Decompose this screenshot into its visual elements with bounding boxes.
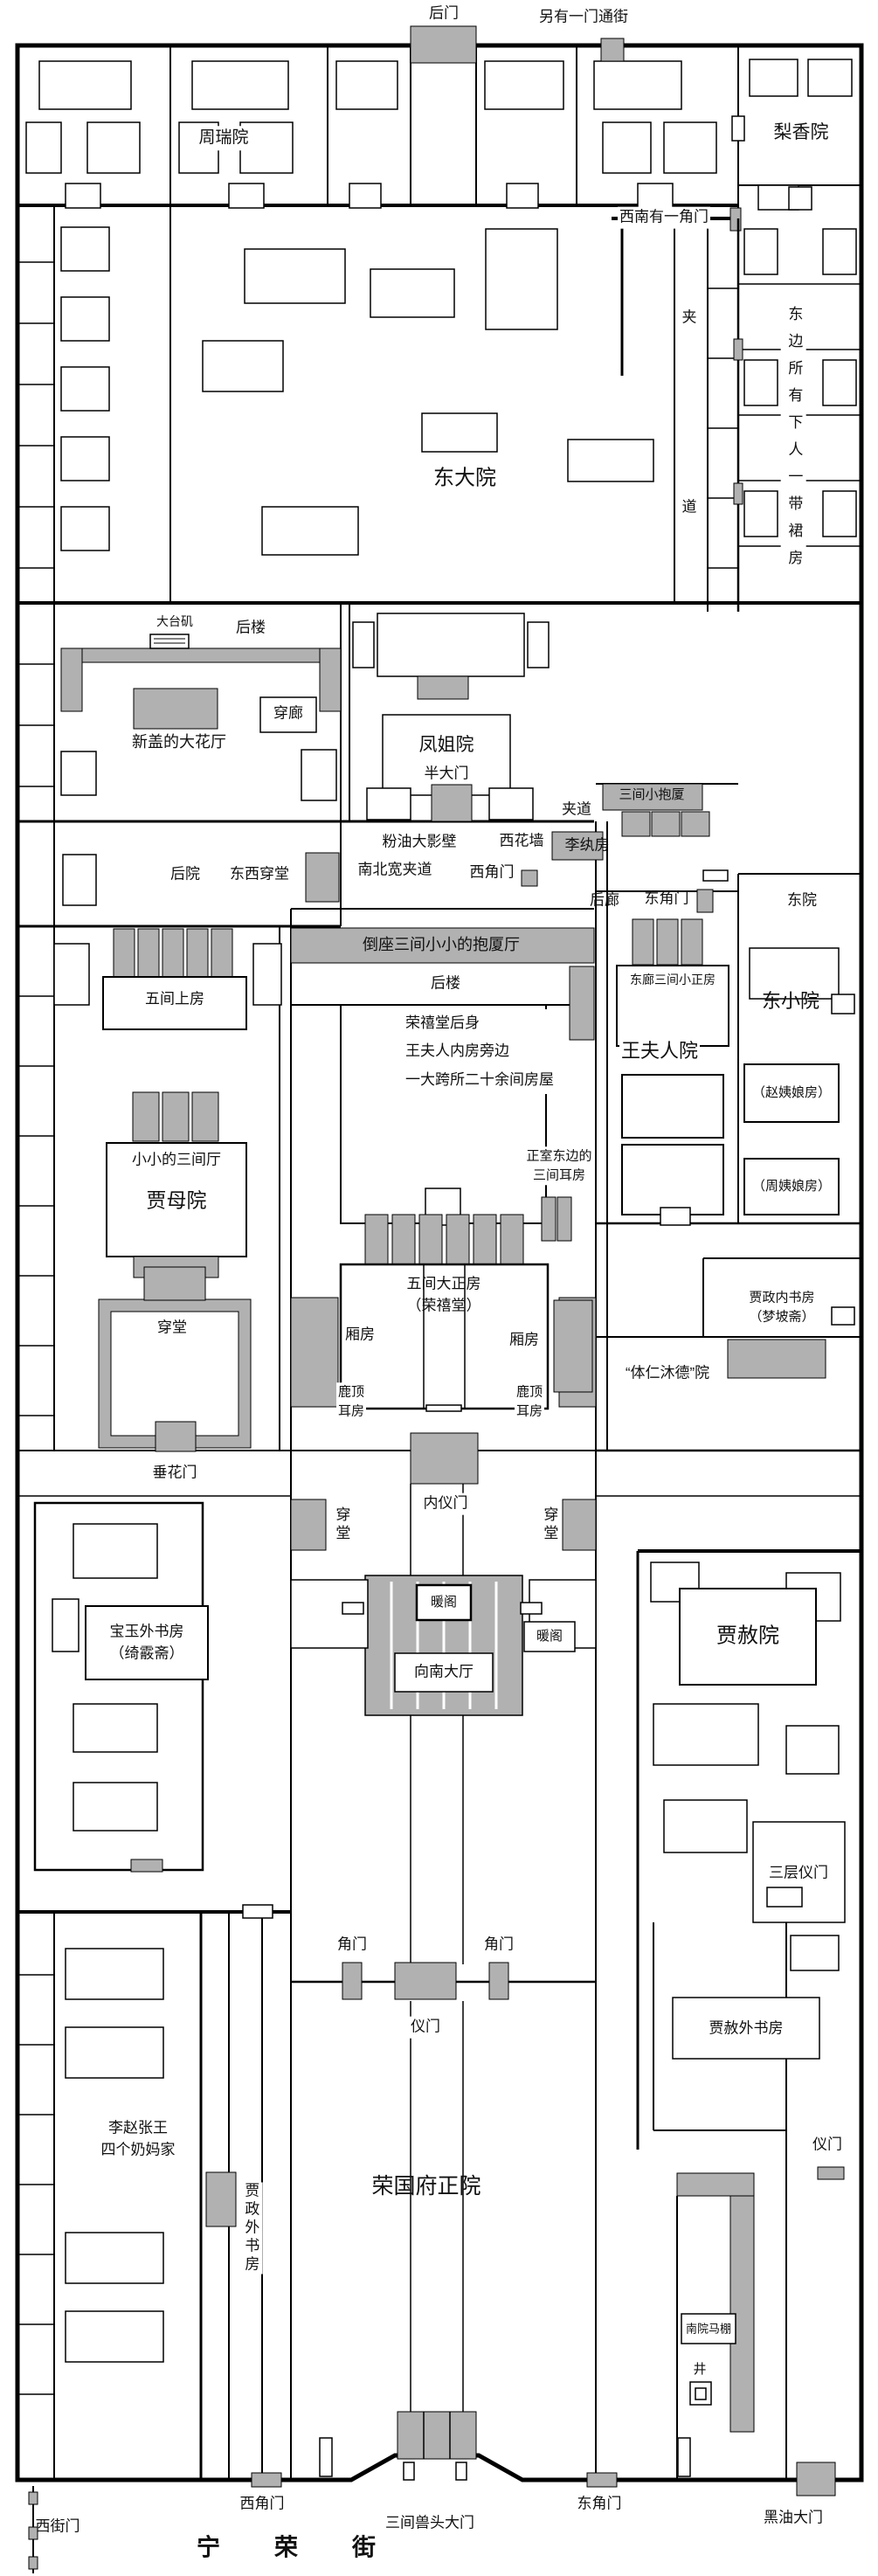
label-another-street-gate: 另有一门通街: [539, 7, 628, 29]
label-concubine-zhou-room: （周姨娘房）: [750, 1177, 833, 1196]
label-west-corner-gate-2: 西角门: [240, 2494, 285, 2516]
label-corner-gate-right: 角门: [482, 1935, 515, 1956]
label-covered-corridor: 穿廊: [273, 703, 303, 725]
label-east-big-court: 东大院: [433, 464, 496, 495]
rear-court: [63, 853, 339, 905]
label-alley-2: 夹道: [562, 800, 591, 821]
label-west-corner-gate-1: 西角门: [470, 862, 515, 884]
label-east-court: 东院: [787, 890, 817, 912]
label-west-flower-wall: 西花墙: [500, 831, 544, 853]
label-east-corner-gate-1: 东角门: [645, 889, 689, 911]
label-luding-ear-room-left: 鹿顶 耳房: [336, 1382, 366, 1421]
label-rear-building-2: 后楼: [431, 973, 460, 995]
label-fengjie-court: 凤姐院: [419, 732, 474, 758]
label-three-tier-gate: 三层仪门: [767, 1863, 830, 1885]
label-passage-hall-2: 穿堂: [328, 1506, 354, 1543]
label-ceremonial-gate-1: 仪门: [409, 2017, 442, 2039]
label-small-three-bay-hall: 小小的三间厅: [132, 1150, 221, 1172]
label-east-corner-gate-2: 东角门: [577, 2494, 622, 2516]
label-jiazheng-outer-study: 贾政外书房: [238, 2183, 263, 2275]
label-rear-court: 后院: [170, 864, 200, 886]
label-warm-pavilion-2: 暖阁: [536, 1627, 563, 1646]
label-corner-gate-left: 角门: [335, 1935, 369, 1956]
dongdayuan-buildings: [170, 205, 674, 603]
label-east-ear-rooms: 正室东边的 三间耳房: [524, 1146, 593, 1185]
label-five-bay-upper-rooms: 五间上房: [143, 989, 206, 1011]
label-liwan-room: 李纨房: [565, 835, 610, 857]
label-hanging-flower-gate: 垂花门: [151, 1463, 199, 1485]
label-wing-room-left: 厢房: [343, 1325, 377, 1347]
north-courtyards: [17, 45, 738, 218]
label-black-lacquer-gate: 黑油大门: [764, 2508, 823, 2530]
label-east-small-court: 东小院: [762, 987, 819, 1015]
label-passage-hall-1: 穿堂: [157, 1318, 187, 1340]
label-lady-wang-court: 王夫人院: [619, 1037, 700, 1065]
nuange-hall: [291, 1484, 596, 1964]
label-well: 井: [691, 2360, 708, 2379]
south-gates: [29, 2412, 835, 2573]
label-warm-pavilion-1: 暖阁: [431, 1593, 457, 1612]
label-grandmother-jia-court: 贾母院: [147, 1186, 207, 1215]
label-concubine-zhao-room: （赵姨娘房）: [750, 1084, 833, 1103]
label-passage-hall-3: 穿堂: [536, 1506, 562, 1543]
label-reversed-porch-hall: 倒座三间小小的抱厦厅: [363, 933, 520, 956]
label-half-gate: 半大门: [425, 764, 469, 786]
label-luding-ear-room-right: 鹿顶 耳房: [515, 1382, 544, 1421]
label-baoyu-outer-study: 宝玉外书房 （绮霰斋）: [110, 1621, 184, 1664]
label-southwest-corner-gate: 西南有一角门: [618, 207, 710, 229]
label-lixiang-court: 梨香院: [772, 120, 831, 146]
fengjie-court: [349, 603, 549, 821]
label-inner-ceremonial-gate: 内仪门: [422, 1493, 470, 1515]
west-room-strip: [17, 205, 109, 1416]
label-east-corridor-rooms: 东廊三间小正房: [628, 971, 717, 988]
label-tirenmude-court: “体仁沐德”院: [624, 1363, 711, 1385]
label-rongguo-main-court: 荣国府正院: [371, 2171, 480, 2202]
label-ningrong-street: 宁荣街: [197, 2531, 430, 2565]
label-jiazheng-inner-study: 贾政内书房 （梦坡斋）: [747, 1288, 816, 1326]
label-wide-alley: 南北宽夹道: [358, 860, 432, 882]
rongguo-mansion-floor-plan: 后门 另有一门通街 周瑞院 梨香院 西南有一角门 东大院 夹 道 东边所有下人一…: [0, 0, 878, 2576]
label-wing-room-right: 厢房: [508, 1330, 541, 1352]
label-back-gate: 后门: [429, 3, 459, 25]
label-rongxitang-rear: 荣禧堂后身 王夫人内房旁边 一大跨所二十余间房屋: [404, 1009, 556, 1094]
label-east-west-passage: 东西穿堂: [230, 864, 289, 886]
label-east-servants-rooms: 东边所有下人一带裙房: [781, 306, 806, 577]
label-west-street-gate: 西街门: [36, 2517, 80, 2538]
label-jiashe-outer-study: 贾赦外书房: [709, 2019, 784, 2040]
label-jiashe-court: 贾赦院: [716, 1622, 779, 1652]
label-rear-corridor: 后廊: [590, 890, 619, 912]
label-zhourui-court: 周瑞院: [197, 126, 250, 150]
label-rear-building-1: 后楼: [236, 618, 266, 640]
label-big-terrace: 大台矶: [156, 613, 193, 630]
label-main-hall-rongxitang: 五间大正房 （荣禧堂）: [407, 1273, 481, 1316]
label-screen-wall: 粉油大影壁: [383, 832, 457, 854]
label-alley-top: 夹: [682, 308, 697, 329]
label-new-flower-hall: 新盖的大花厅: [130, 731, 228, 753]
label-alley-bottom: 道: [682, 497, 697, 519]
label-ceremonial-gate-2: 仪门: [811, 2135, 844, 2157]
label-three-bay-porch: 三间小抱厦: [619, 786, 684, 805]
label-south-facing-hall: 向南大厅: [414, 1662, 474, 1684]
label-south-stable: 南院马棚: [686, 2322, 731, 2338]
label-nannies-homes: 李赵张王 四个奶妈家: [100, 2117, 177, 2160]
baoyu-court: [35, 1503, 208, 1872]
